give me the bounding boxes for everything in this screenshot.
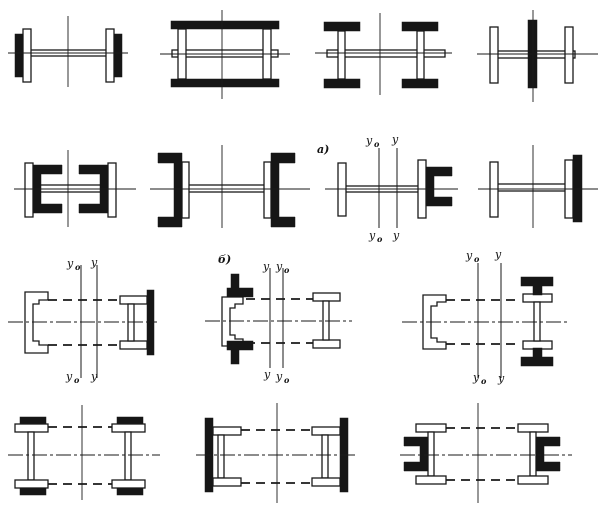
axis-label-y0-top: у <box>66 257 74 270</box>
axis-label-y0-sub-top: о <box>284 265 290 275</box>
figure-canvas: а) у о у у о у у о у у о у <box>0 0 604 509</box>
section-laced-channel-i-beam-side-plate: у о у у о у <box>8 256 157 385</box>
section-panel-b-channel-angles-i-beam: б) у у о у у о <box>205 253 352 385</box>
axis-label-y0-sub-top: о <box>374 139 380 149</box>
axis-label-y0-bottom: у <box>368 229 376 242</box>
panel-a-label: а) <box>317 143 329 156</box>
axis-label-y0-top: у <box>365 134 373 147</box>
section-laced-i-beams-flange-plates <box>8 405 160 500</box>
section-web-plate-with-side-plates <box>8 16 128 87</box>
axis-label-y0-top: у <box>465 249 473 262</box>
axis-label-y0-bottom: у <box>65 370 73 383</box>
axis-label-y0-sub-top: о <box>75 262 81 272</box>
section-plate-and-black-strip <box>478 145 598 228</box>
axis-label-y-bottom: у <box>90 370 98 383</box>
cross-sections-diagram: а) у о у у о у у о у у о у <box>0 0 604 509</box>
axis-label-y-top: у <box>90 256 98 269</box>
axis-label-y0-bottom: у <box>275 370 283 383</box>
axis-label-y-top: у <box>262 260 270 273</box>
axis-label-y0-sub-bottom: о <box>377 234 383 244</box>
section-panel-a-plate-and-channel: а) у о у у о у <box>317 133 458 244</box>
panel-b-label: б) <box>218 253 231 266</box>
axis-label-y-top: у <box>391 133 399 146</box>
axis-label-y0-sub-bottom: о <box>74 375 80 385</box>
section-plates-outward-channels <box>150 145 310 228</box>
axis-label-y0-sub-top: о <box>474 254 480 264</box>
axis-label-y-bottom: у <box>497 372 505 385</box>
section-laced-i-beams-outer-side-plates <box>196 403 358 503</box>
section-laced-channel-i-beam-tee-stiffeners: у о у у о у <box>402 248 568 386</box>
axis-label-y0-sub-bottom: о <box>481 376 487 386</box>
axis-label-y-bottom: у <box>263 368 271 381</box>
axis-label-y0-sub-bottom: о <box>284 375 290 385</box>
axis-label-y0-bottom: у <box>472 371 480 384</box>
axis-label-y-bottom: у <box>392 229 400 242</box>
section-box-twin-webs-cover-plates <box>160 10 290 99</box>
section-laced-i-beams-outer-channels <box>400 403 572 503</box>
section-two-i-beams-web-plate <box>315 13 452 95</box>
axis-label-y-top: у <box>494 248 502 261</box>
axis-label-y0-top: у <box>275 260 283 273</box>
section-plates-inward-channels <box>14 150 136 227</box>
section-cruciform-central-plate <box>477 10 598 102</box>
